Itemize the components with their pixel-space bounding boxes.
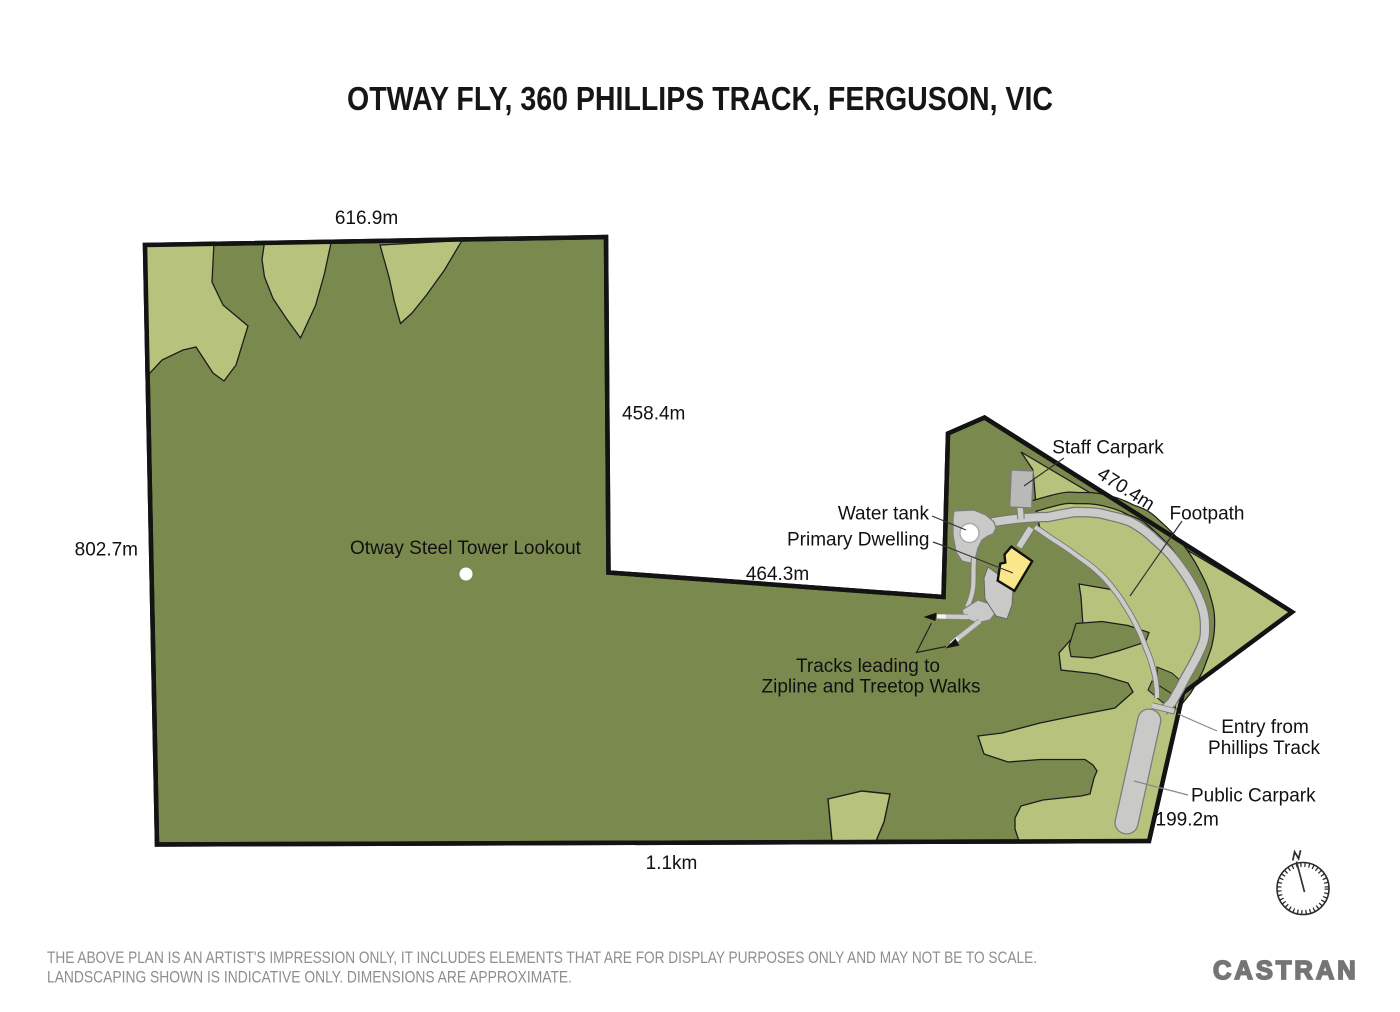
svg-text:Footpath: Footpath (1170, 504, 1245, 525)
svg-text:802.7m: 802.7m (75, 540, 138, 561)
svg-text:616.9m: 616.9m (335, 208, 398, 229)
svg-text:Water tank: Water tank (838, 504, 930, 525)
svg-text:Zipline and Treetop Walks: Zipline and Treetop Walks (762, 677, 981, 698)
svg-text:Primary Dwelling: Primary Dwelling (787, 530, 930, 551)
svg-text:Tracks leading to: Tracks leading to (796, 656, 940, 677)
svg-text:CASTRAN: CASTRAN (1213, 957, 1359, 985)
svg-text:Otway Steel Tower Lookout: Otway Steel Tower Lookout (350, 538, 582, 559)
svg-text:Staff Carpark: Staff Carpark (1052, 438, 1164, 459)
svg-text:464.3m: 464.3m (746, 564, 809, 585)
svg-text:1.1km: 1.1km (646, 853, 698, 874)
svg-text:Phillips Track: Phillips Track (1208, 738, 1320, 759)
svg-text:OTWAY FLY, 360 PHILLIPS TRACK,: OTWAY FLY, 360 PHILLIPS TRACK, FERGUSON,… (347, 80, 1053, 117)
svg-text:458.4m: 458.4m (622, 404, 685, 425)
svg-text:199.2m: 199.2m (1156, 810, 1219, 831)
svg-text:THE ABOVE PLAN IS AN ARTIST'S: THE ABOVE PLAN IS AN ARTIST'S IMPRESSION… (47, 949, 1037, 967)
svg-text:Public Carpark: Public Carpark (1191, 786, 1316, 807)
svg-text:LANDSCAPING SHOWN IS INDICATIV: LANDSCAPING SHOWN IS INDICATIVE ONLY. DI… (47, 969, 572, 987)
svg-text:Entry from: Entry from (1221, 717, 1309, 738)
